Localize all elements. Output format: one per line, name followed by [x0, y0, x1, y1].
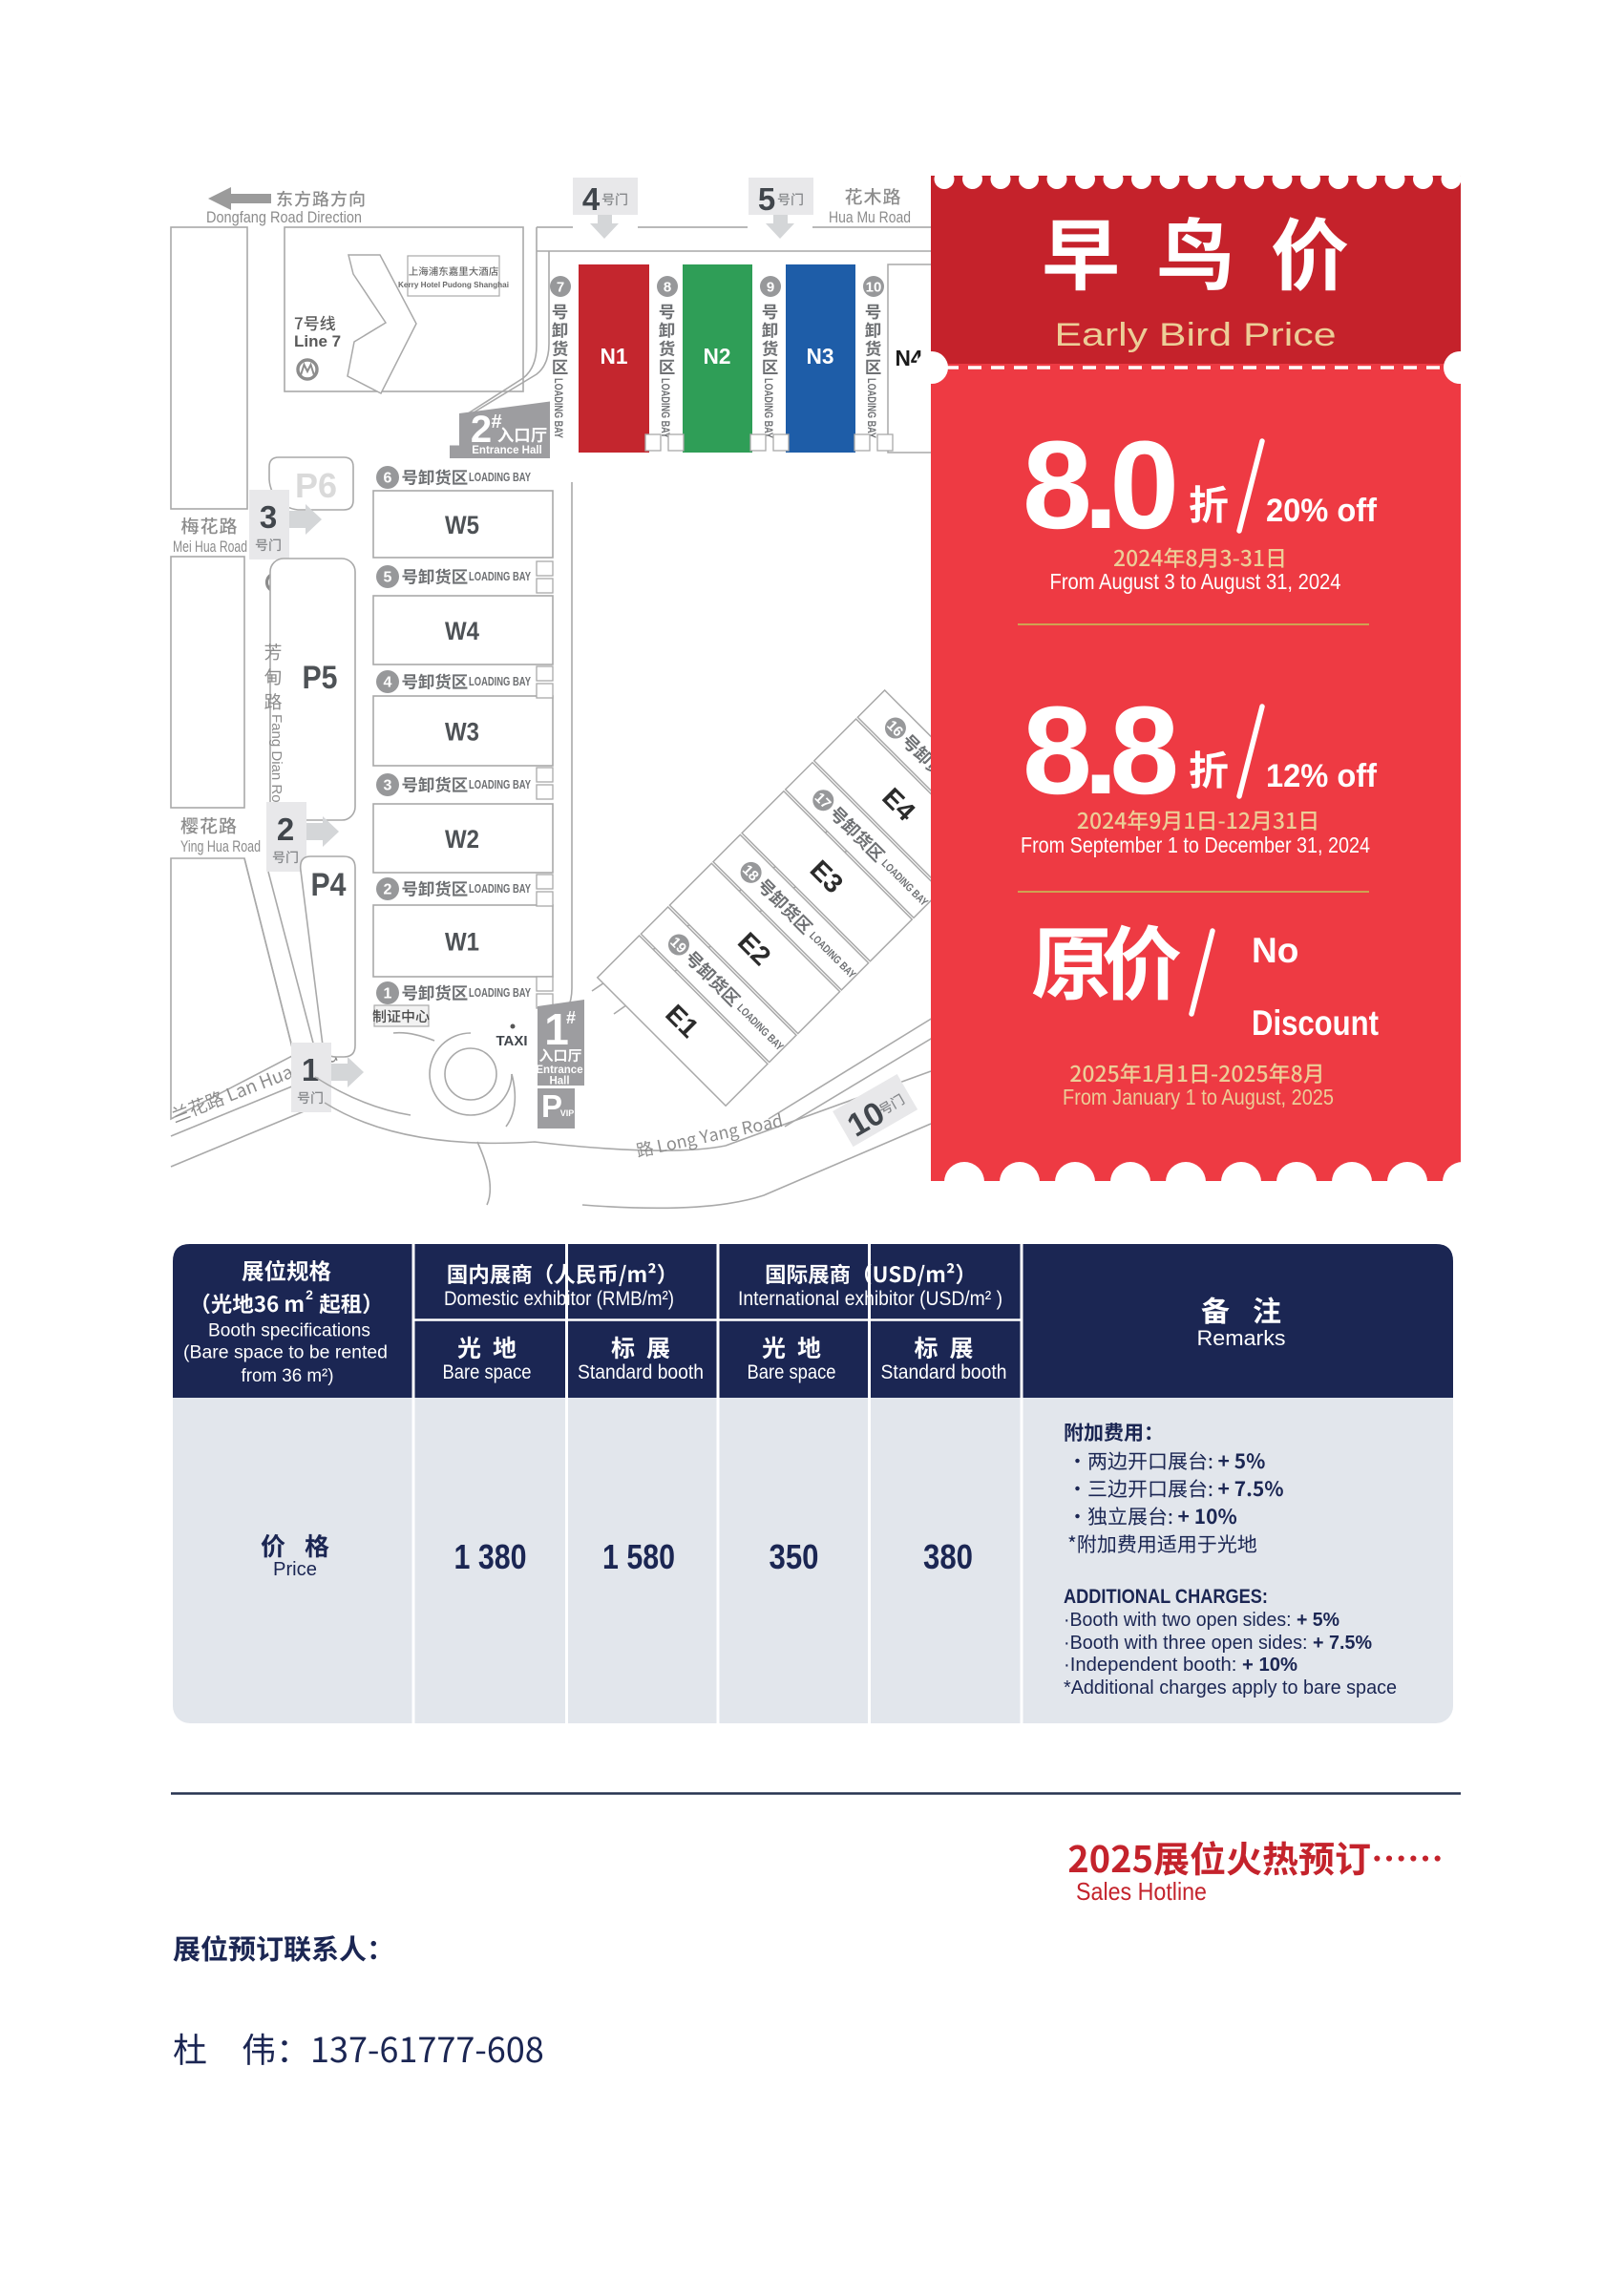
svg-text:Discount: Discount [1252, 1003, 1379, 1043]
svg-text:12% off: 12% off [1266, 758, 1378, 794]
svg-text:Bare space: Bare space [443, 1361, 532, 1383]
svg-text:W3: W3 [445, 718, 479, 747]
svg-text:from 36 m²): from 36 m²) [242, 1366, 334, 1386]
svg-text:From September 1 to December 3: From September 1 to December 31, 2024 [1021, 833, 1370, 857]
svg-text:Ying Hua Road: Ying Hua Road [180, 837, 261, 855]
svg-text:LOADING BAY: LOADING BAY [552, 378, 563, 438]
svg-text:#: # [491, 411, 501, 432]
svg-text:W2: W2 [445, 825, 479, 854]
svg-text:Early Bird Price: Early Bird Price [1055, 317, 1337, 353]
svg-text:Remarks: Remarks [1197, 1326, 1286, 1350]
svg-text:Booth specifications: Booth specifications [208, 1321, 370, 1341]
svg-text:2: 2 [306, 1287, 313, 1302]
svg-text:From August 3 to August 31, 20: From August 3 to August 31, 2024 [1050, 569, 1341, 594]
svg-text:1: 1 [544, 1004, 569, 1054]
svg-text:9: 9 [767, 280, 774, 296]
svg-text:P4: P4 [311, 867, 347, 903]
svg-text:·Booth with two open sides: +: ·Booth with two open sides: + 5% [1064, 1610, 1339, 1631]
svg-text:Dongfang Road Direction: Dongfang Road Direction [206, 208, 362, 226]
svg-text:20% off: 20% off [1266, 493, 1378, 529]
svg-text:1: 1 [302, 1052, 319, 1087]
svg-text:7: 7 [557, 280, 564, 296]
svg-text:4: 4 [582, 181, 601, 217]
svg-text:LOADING BAY: LOADING BAY [659, 378, 670, 438]
svg-text:380: 380 [923, 1537, 973, 1576]
svg-text:*Additional charges apply to b: *Additional charges apply to bare space [1064, 1677, 1397, 1698]
svg-text:6: 6 [384, 471, 392, 487]
svg-text:Standard booth: Standard booth [578, 1361, 704, 1383]
svg-text:(Bare space to be rented: (Bare space to be rented [183, 1343, 388, 1363]
svg-text:#: # [566, 1008, 576, 1027]
svg-text:8.8: 8.8 [1023, 680, 1175, 820]
svg-text:TAXI: TAXI [496, 1033, 527, 1049]
svg-text:3: 3 [384, 778, 392, 794]
svg-text:2: 2 [384, 882, 392, 898]
svg-text:8: 8 [664, 280, 671, 296]
svg-text:·Independent booth: + 10%: ·Independent booth: + 10% [1064, 1655, 1297, 1676]
svg-text:From January 1 to August, 2025: From January 1 to August, 2025 [1063, 1085, 1334, 1109]
svg-text:8.0: 8.0 [1023, 414, 1174, 555]
svg-text:5: 5 [758, 181, 775, 217]
svg-text:P5: P5 [303, 660, 338, 696]
svg-text:2: 2 [277, 812, 294, 847]
svg-text:W4: W4 [445, 617, 479, 645]
svg-text:International exhibitor (USD/m: International exhibitor (USD/m² ) [738, 1288, 1002, 1310]
svg-text:LOADING BAY: LOADING BAY [469, 778, 531, 791]
svg-text:No: No [1252, 931, 1298, 970]
svg-text:ADDITIONAL CHARGES:: ADDITIONAL CHARGES: [1064, 1586, 1268, 1608]
svg-text:Entrance Hall: Entrance Hall [472, 445, 542, 456]
svg-text:Hua Mu Road: Hua Mu Road [829, 208, 911, 226]
svg-text:10: 10 [866, 280, 882, 296]
svg-text:350: 350 [770, 1537, 819, 1576]
svg-text:N2: N2 [704, 344, 731, 369]
svg-text:4: 4 [384, 675, 392, 691]
svg-text:1 580: 1 580 [602, 1537, 675, 1576]
svg-text:P: P [541, 1088, 562, 1124]
svg-text:·Booth with three open sides:: ·Booth with three open sides: + 7.5% [1064, 1633, 1372, 1654]
svg-text:Mei Hua Road: Mei Hua Road [173, 538, 247, 556]
svg-text:LOADING BAY: LOADING BAY [469, 882, 531, 896]
svg-text:1: 1 [384, 986, 392, 1002]
svg-text:Entrance: Entrance [536, 1065, 582, 1076]
svg-text:Standard booth: Standard booth [881, 1361, 1007, 1383]
svg-text:N3: N3 [807, 344, 834, 369]
svg-text:Sales Hotline: Sales Hotline [1076, 1877, 1207, 1906]
svg-text:Line 7: Line 7 [294, 332, 341, 350]
svg-text:1 380: 1 380 [454, 1537, 527, 1576]
svg-text:P6: P6 [295, 466, 337, 505]
svg-text:Price: Price [273, 1559, 317, 1580]
svg-text:Domestic exhibitor (RMB/m²): Domestic exhibitor (RMB/m²) [444, 1288, 674, 1310]
svg-text:LOADING BAY: LOADING BAY [469, 986, 531, 1000]
svg-text:LOADING BAY: LOADING BAY [469, 471, 531, 484]
svg-text:LOADING BAY: LOADING BAY [469, 570, 531, 583]
svg-text:LOADING BAY: LOADING BAY [865, 378, 876, 438]
svg-text:W5: W5 [445, 511, 479, 539]
svg-text:N1: N1 [601, 344, 628, 369]
svg-text:Bare space: Bare space [748, 1361, 836, 1383]
svg-text:Kerry Hotel Pudong Shanghai: Kerry Hotel Pudong Shanghai [398, 281, 509, 289]
svg-text:5: 5 [384, 570, 392, 586]
svg-text:LOADING BAY: LOADING BAY [469, 675, 531, 688]
svg-text:3: 3 [260, 499, 277, 535]
svg-text:W1: W1 [445, 928, 479, 957]
svg-text:VIP: VIP [560, 1108, 575, 1118]
svg-text:Hall: Hall [549, 1076, 569, 1087]
svg-text:LOADING BAY: LOADING BAY [762, 378, 773, 438]
